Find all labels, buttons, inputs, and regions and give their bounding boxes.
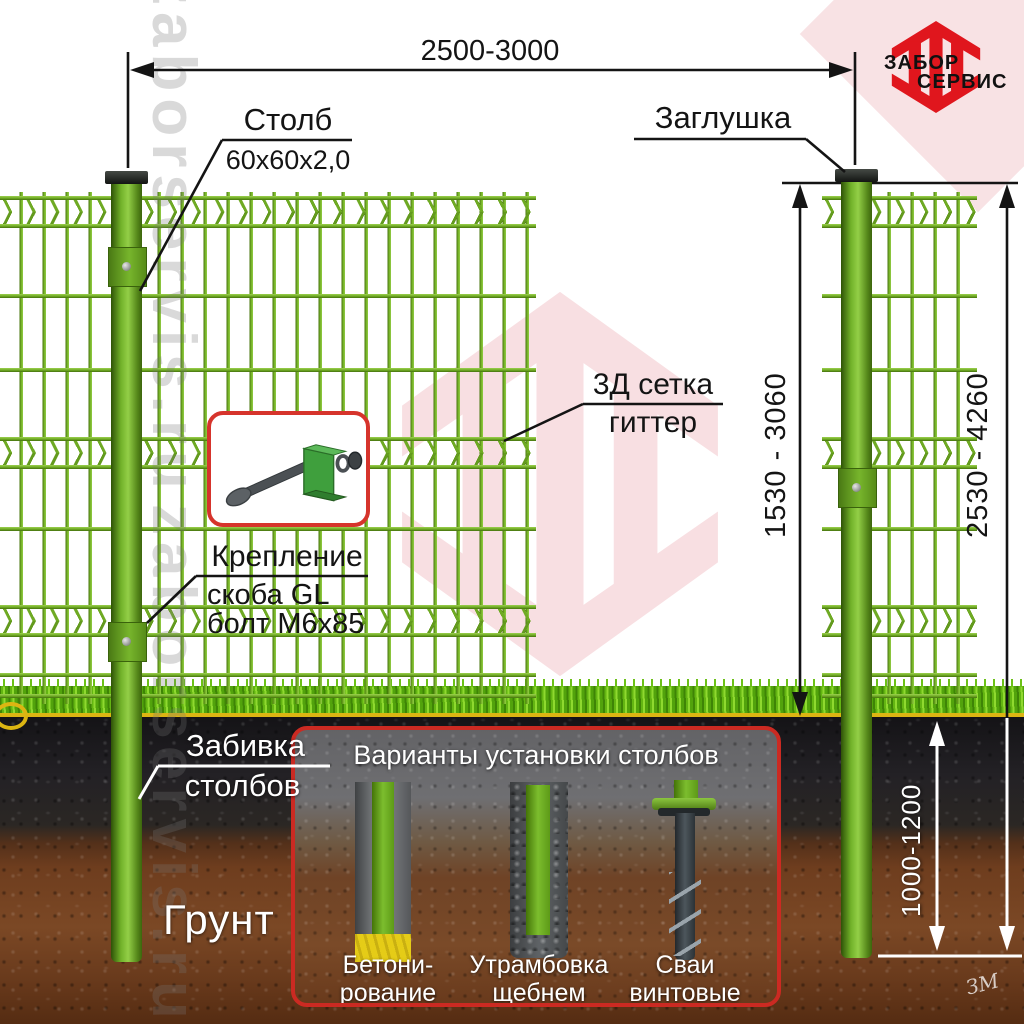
total-height-dimension-label: 2530 - 4260 — [962, 290, 995, 620]
mesh-bracket — [108, 622, 147, 662]
depth-dimension-label: 1000-1200 — [896, 768, 927, 932]
option-gravel-graphic — [510, 782, 568, 958]
mesh-height-dimension-label: 1530 - 3060 — [760, 300, 793, 610]
option-caption-gravel: Утрамбовка щебнем — [454, 952, 624, 1007]
mesh-callout-line1: 3Д сетка — [580, 368, 726, 402]
fence-post-left — [111, 183, 142, 962]
installation-options-panel: Варианты установки столбов Бетони- рован… — [291, 726, 781, 1007]
fastener-icon — [211, 415, 366, 523]
bolt-head-icon — [852, 483, 861, 492]
mesh-wire — [0, 294, 536, 298]
mesh-bracket — [838, 468, 877, 508]
option-caption-concrete: Бетони- рование — [303, 952, 473, 1007]
fence-installation-diagram: zaborservis.ru zaborservis.ru — [0, 0, 1024, 1024]
cap-callout-label: Заглушка — [638, 100, 808, 136]
caption-line: рование — [340, 979, 436, 1007]
option-screw-pile-graphic — [650, 780, 720, 960]
mesh-3d-fold — [0, 196, 536, 228]
pile-head — [674, 780, 698, 800]
watermark-text: zaborservis.ru — [138, 0, 209, 496]
panel-title: Варианты установки столбов — [295, 740, 777, 771]
caption-line: винтовые — [629, 979, 740, 1007]
driving-callout-line2: столбов — [150, 768, 335, 804]
brand-logo: ЗАБОР СЕРВИС — [870, 12, 1016, 130]
fastener-callout-line2: болт М6х85 — [207, 608, 387, 641]
pile-spiral — [669, 872, 701, 956]
fence-post-right — [841, 182, 872, 958]
mesh-wire — [0, 694, 536, 698]
brand-name-line2: СЕРВИС — [917, 71, 1007, 94]
post-in-concrete — [372, 782, 394, 935]
mesh-wire — [0, 673, 536, 677]
watermark-text: zaborservis.ru — [138, 504, 209, 1024]
post-in-gravel — [526, 785, 550, 935]
caption-line: Бетони- — [343, 951, 434, 979]
driving-callout-line1: Забивка — [158, 728, 333, 764]
bolt-head-icon — [122, 262, 131, 271]
fastener-callout-title: Крепление — [203, 540, 371, 574]
post-size-label: 60х60х2,0 — [222, 145, 354, 176]
mesh-bracket — [108, 247, 147, 287]
span-dimension-label: 2500-3000 — [360, 35, 620, 68]
fastener-detail-inset — [207, 411, 370, 527]
mesh-callout-line2: гиттер — [580, 406, 726, 440]
option-concrete-graphic — [355, 782, 411, 962]
soil-label: Грунт — [163, 896, 363, 944]
caption-line: Утрамбовка — [470, 951, 609, 979]
option-caption-screw-pile: Сваи винтовые — [600, 952, 770, 1007]
bolt-head-icon — [122, 637, 131, 646]
mesh-wire — [0, 527, 536, 531]
post-cap-right — [835, 169, 878, 182]
post-callout-title: Столб — [218, 102, 358, 138]
caption-line: щебнем — [492, 979, 585, 1007]
post-cap-left — [105, 171, 148, 184]
mesh-wire — [0, 368, 536, 372]
caption-line: Сваи — [656, 951, 715, 979]
